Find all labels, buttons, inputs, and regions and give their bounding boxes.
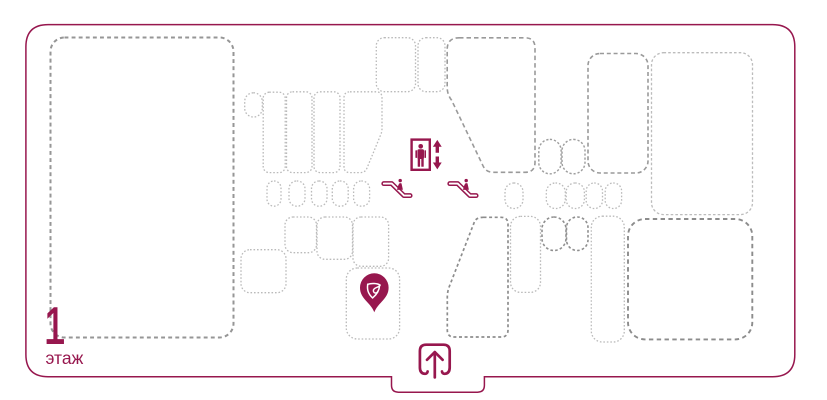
svg-text:этаж: этаж [46,348,84,368]
svg-text:1: 1 [44,298,66,356]
